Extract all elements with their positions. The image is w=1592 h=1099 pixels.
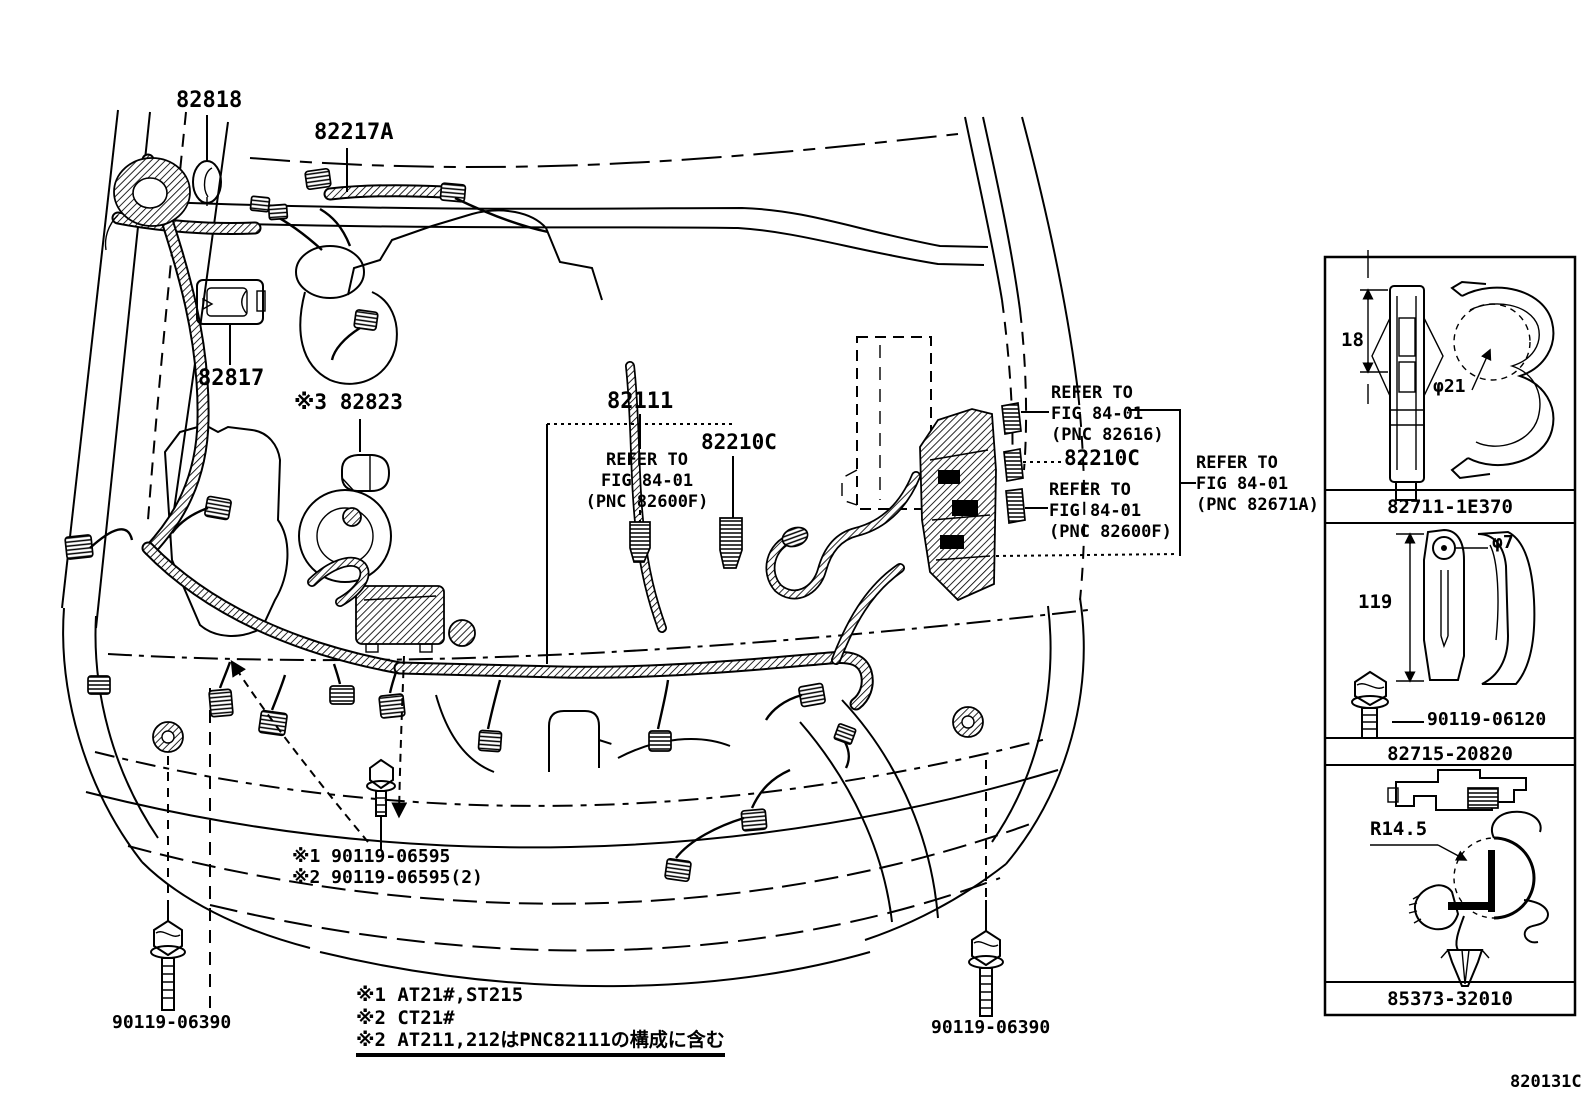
part-82823-clamp — [342, 455, 389, 491]
drawing-code: 820131C — [1510, 1074, 1582, 1092]
junction-block — [920, 409, 996, 600]
note-90119-06595-1: ※1 90119-06595 — [292, 848, 450, 867]
panel-sub-part-90119-06120: 90119-06120 — [1427, 711, 1546, 730]
dim-119: 119 — [1358, 593, 1392, 613]
refer-line: (PNC 82600F) — [577, 492, 717, 513]
part-label-82823: ※3 82823 — [294, 391, 403, 413]
part-label-82111: 82111 — [607, 390, 673, 413]
refer-line: FIG 84-01 — [1049, 501, 1172, 522]
part-82817-protector — [197, 280, 265, 324]
bolt-90119-06390-right — [969, 900, 1003, 1016]
refer-line: FIG 84-01 — [577, 471, 717, 492]
side-panel — [1325, 250, 1575, 1015]
grommet-ring-right — [953, 707, 983, 737]
refer-line: FIG 84-01 — [1196, 474, 1319, 495]
footnote-1: ※1 AT21#,ST215 — [356, 986, 523, 1006]
dim-18: 18 — [1341, 331, 1364, 351]
bolts — [151, 760, 1003, 1016]
grommet-ring-left — [153, 722, 183, 752]
refer-note-82671a: REFER TO FIG 84-01 (PNC 82671A) — [1196, 453, 1319, 516]
dim-phi7: φ7 — [1492, 534, 1514, 553]
panel-part-no-82711: 82711-1E370 — [1325, 496, 1575, 518]
refer-note-82616: REFER TO FIG 84-01 (PNC 82616) — [1051, 383, 1164, 446]
refer-note-mid-82600f: REFER TO FIG 84-01 (PNC 82600F) — [577, 450, 717, 513]
refer-line: (PNC 82600F) — [1049, 522, 1172, 543]
part-label-82210c-right: 82210C — [1064, 447, 1140, 469]
bolt-label-right: 90119-06390 — [931, 1019, 1050, 1038]
ecu-box — [356, 586, 444, 652]
part-label-82817: 82817 — [198, 367, 264, 390]
refer-note-right-82600f: REFER TO FIG 84-01 (PNC 82600F) — [1049, 480, 1172, 543]
refer-line: REFER TO — [1196, 453, 1319, 474]
bolt-label-left: 90119-06390 — [112, 1014, 231, 1033]
booster-ring — [343, 508, 361, 526]
dim-r14-5: R14.5 — [1370, 820, 1427, 840]
part-label-82818: 82818 — [176, 89, 242, 112]
leader-lines — [168, 115, 1196, 928]
note-90119-06595-2: ※2 90119-06595(2) — [292, 869, 483, 888]
footnote-2: ※2 CT21# — [356, 1009, 455, 1029]
panel-cell-85373 — [1370, 770, 1548, 986]
bolt-90119-06595 — [367, 760, 395, 816]
engine-components — [165, 209, 996, 652]
panel-part-no-85373: 85373-32010 — [1325, 988, 1575, 1010]
dim-phi21: φ21 — [1433, 378, 1466, 397]
refer-line: REFER TO — [1051, 383, 1164, 404]
panel-part-no-82715: 82715-20820 — [1325, 743, 1575, 765]
refer-line: REFER TO — [1049, 480, 1172, 501]
panel-cell-82711 — [1360, 250, 1553, 500]
part-label-82217a: 82217A — [314, 121, 393, 144]
parts-diagram-page: 82818 82217A 82817 ※3 82823 82111 82210C… — [0, 0, 1592, 1099]
car-wiring-line-art — [0, 0, 1592, 1099]
refer-line: (PNC 82616) — [1051, 425, 1164, 446]
bolt-90119-06390-left — [151, 906, 185, 1010]
refer-line: (PNC 82671A) — [1196, 495, 1319, 516]
refer-line: FIG 84-01 — [1051, 404, 1164, 425]
panel-cell-82715 — [1352, 530, 1534, 738]
footnote-3: ※2 AT211,212はPNC82111の構成に含む — [356, 1031, 725, 1057]
refer-line: REFER TO — [577, 450, 717, 471]
